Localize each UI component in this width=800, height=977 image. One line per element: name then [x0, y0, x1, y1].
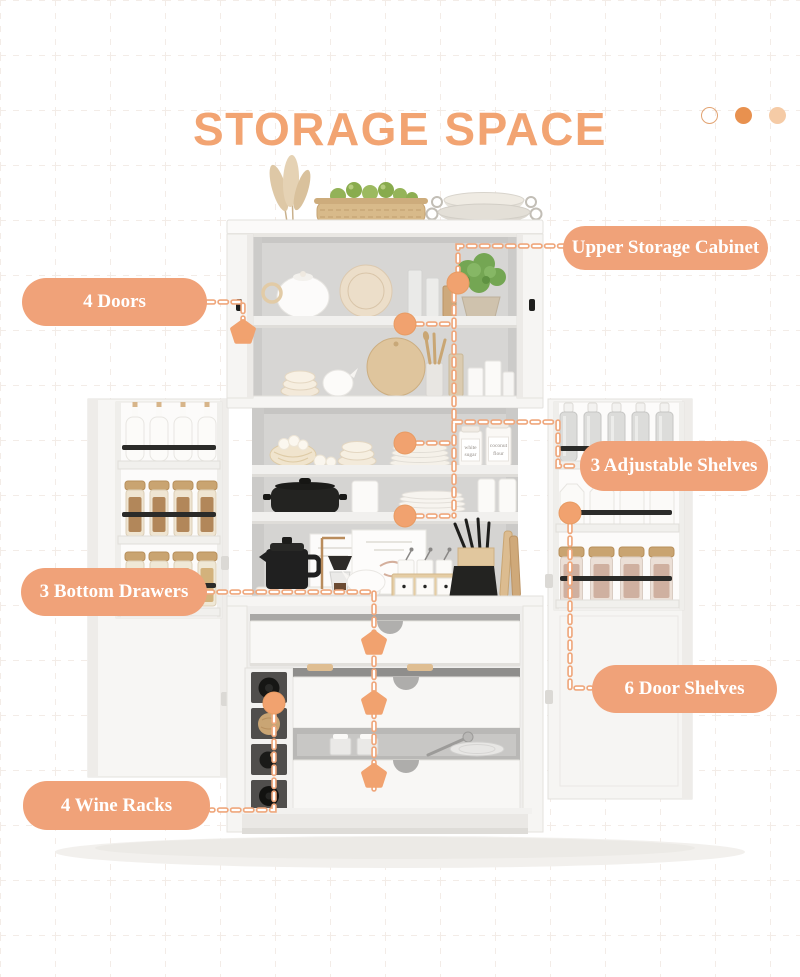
decor-dot-outline [701, 107, 718, 124]
flour-jar-label-line2: flour [493, 450, 504, 457]
callout-four-doors: 4 Doors [22, 278, 207, 326]
teapot [277, 276, 329, 318]
sugar-jar-label-line2: sugar [465, 452, 477, 458]
marker-wine-rack [263, 692, 285, 714]
door-hinge [545, 690, 553, 704]
cabinet-base [238, 808, 532, 834]
door-hinge [545, 574, 553, 588]
decor-dot-light [769, 107, 786, 124]
marker-drawer-1 [363, 632, 385, 653]
cutting-board [367, 338, 425, 396]
marker-shelf-2 [394, 432, 416, 454]
floor-shadow [55, 836, 745, 868]
sugar-jar: white sugar [459, 426, 482, 466]
decor-dot-solid [735, 107, 752, 124]
callout-adjustable-shelves: 3 Adjustable Shelves [580, 441, 768, 491]
flour-jar: coconut flour [486, 421, 511, 466]
sugar-jar-label-line1: white [464, 445, 477, 451]
callout-upper-storage-cabinet: Upper Storage Cabinet [563, 226, 768, 270]
callout-door-shelves: 6 Door Shelves [592, 665, 777, 713]
marker-door-shelves [559, 502, 581, 524]
page-title: STORAGE SPACE [0, 102, 800, 156]
marker-drawer-2 [363, 692, 385, 713]
marker-four-doors [232, 321, 254, 342]
upper-right-door [517, 234, 543, 398]
drawer-3 [293, 728, 520, 810]
marker-drawer-3 [363, 765, 385, 786]
callout-bottom-drawers: 3 Bottom Drawers [21, 568, 207, 616]
product-feature-diagram: white sugar coconut flour [0, 0, 800, 977]
mini-drawer-organizer [392, 574, 456, 599]
marker-shelf-3 [394, 505, 416, 527]
wine-rack [245, 668, 293, 814]
upper-left-door [227, 234, 253, 398]
drawer-2 [293, 664, 520, 728]
decor-dots [701, 107, 786, 124]
flour-jar-label-line1: coconut [490, 443, 508, 449]
callout-wine-racks: 4 Wine Racks [23, 781, 210, 830]
marker-upper-cabinet [447, 272, 469, 294]
door-hinge [221, 556, 229, 570]
door-handle [529, 299, 535, 311]
marker-shelf-1 [394, 313, 416, 335]
